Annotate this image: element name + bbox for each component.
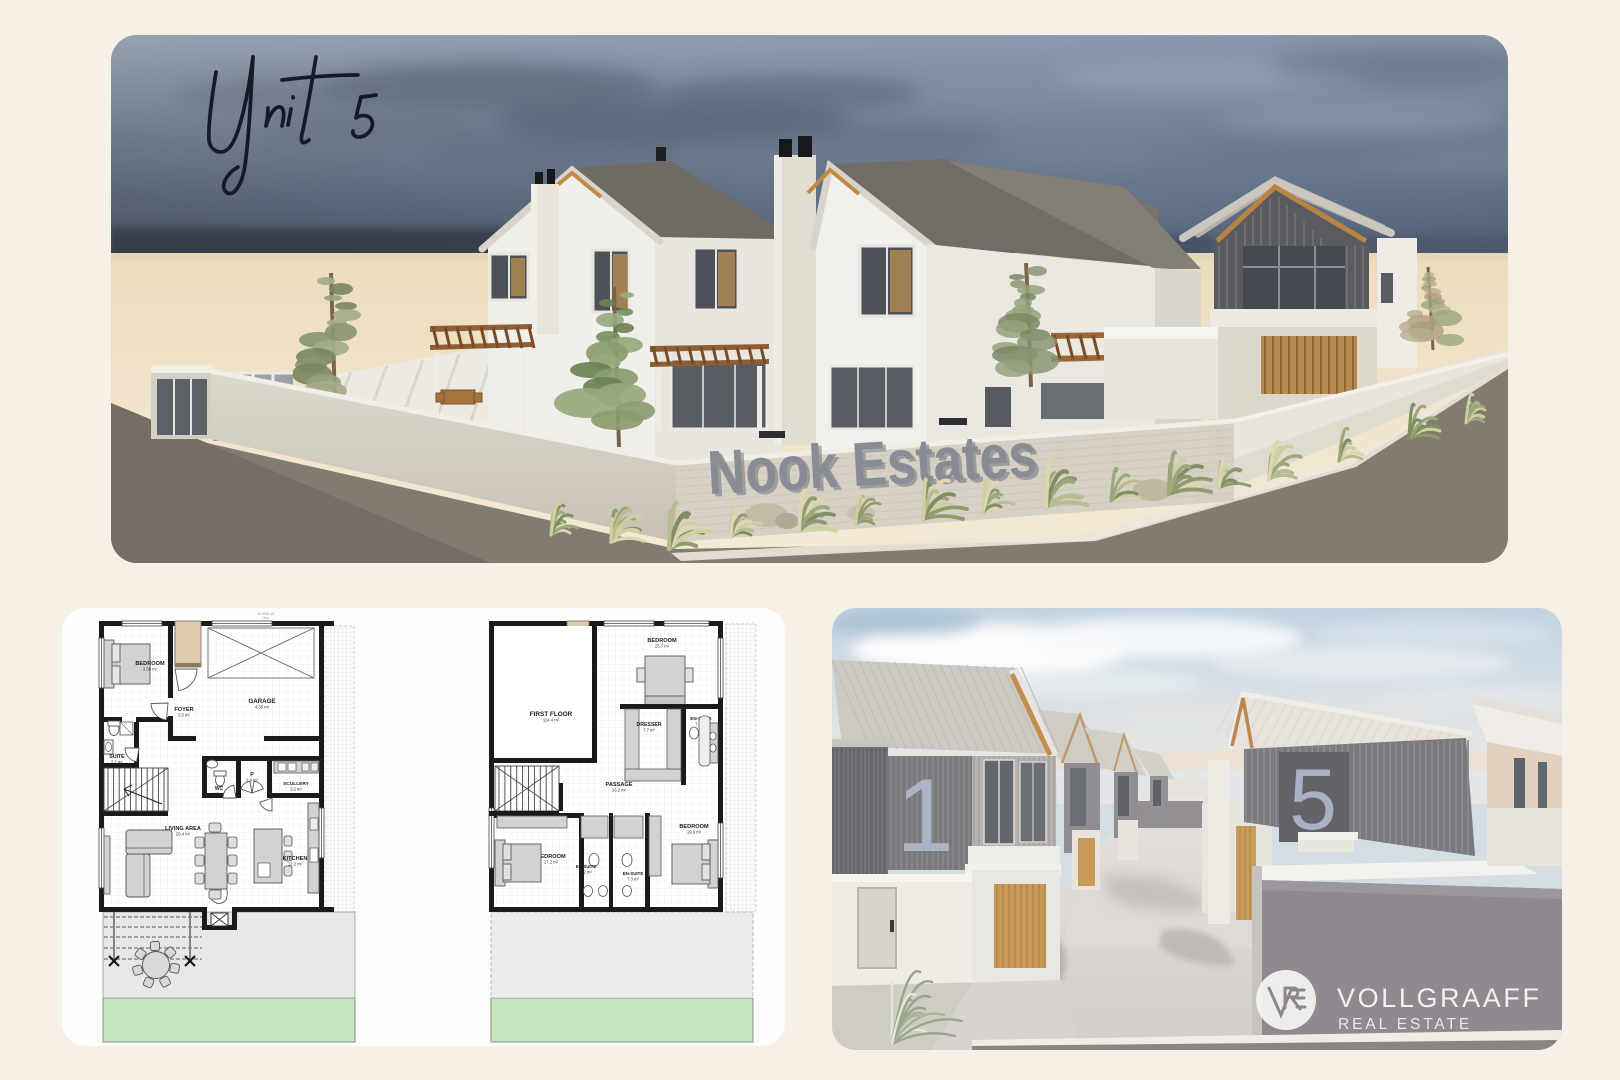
svg-text:17.2 m²: 17.2 m² [544, 860, 559, 865]
svg-text:23.7 m²: 23.7 m² [655, 644, 670, 649]
svg-text:114.4 m²: 114.4 m² [543, 718, 560, 723]
svg-text:3.2 m²: 3.2 m² [290, 787, 302, 792]
svg-text:7.3 m²: 7.3 m² [627, 877, 639, 882]
svg-text:4.35 m²: 4.35 m² [255, 705, 270, 710]
svg-text:5.3 m²: 5.3 m² [178, 713, 190, 718]
svg-text:3.50 m²: 3.50 m² [143, 667, 158, 672]
svg-text:13.2 m²: 13.2 m² [612, 788, 627, 793]
svg-text:12.2 m²: 12.2 m² [288, 862, 303, 867]
svg-text:dim: dim [263, 616, 268, 620]
svg-text:5.2 m²: 5.2 m² [580, 870, 592, 875]
svg-text:1: 1 [896, 758, 954, 874]
svg-text:VOLLGRAAFF: VOLLGRAAFF [1337, 983, 1542, 1013]
svg-text:28.4 m²: 28.4 m² [176, 832, 191, 837]
svg-text:19.9 m²: 19.9 m² [687, 830, 702, 835]
svg-text:EN-SUITE: EN-SUITE [623, 871, 644, 876]
svg-text:2.1 m²: 2.1 m² [111, 760, 123, 765]
svg-text:EN-SUITE: EN-SUITE [576, 864, 597, 869]
svg-text:7.7 m²: 7.7 m² [643, 728, 655, 733]
svg-text:REAL ESTATE: REAL ESTATE [1338, 1016, 1472, 1033]
